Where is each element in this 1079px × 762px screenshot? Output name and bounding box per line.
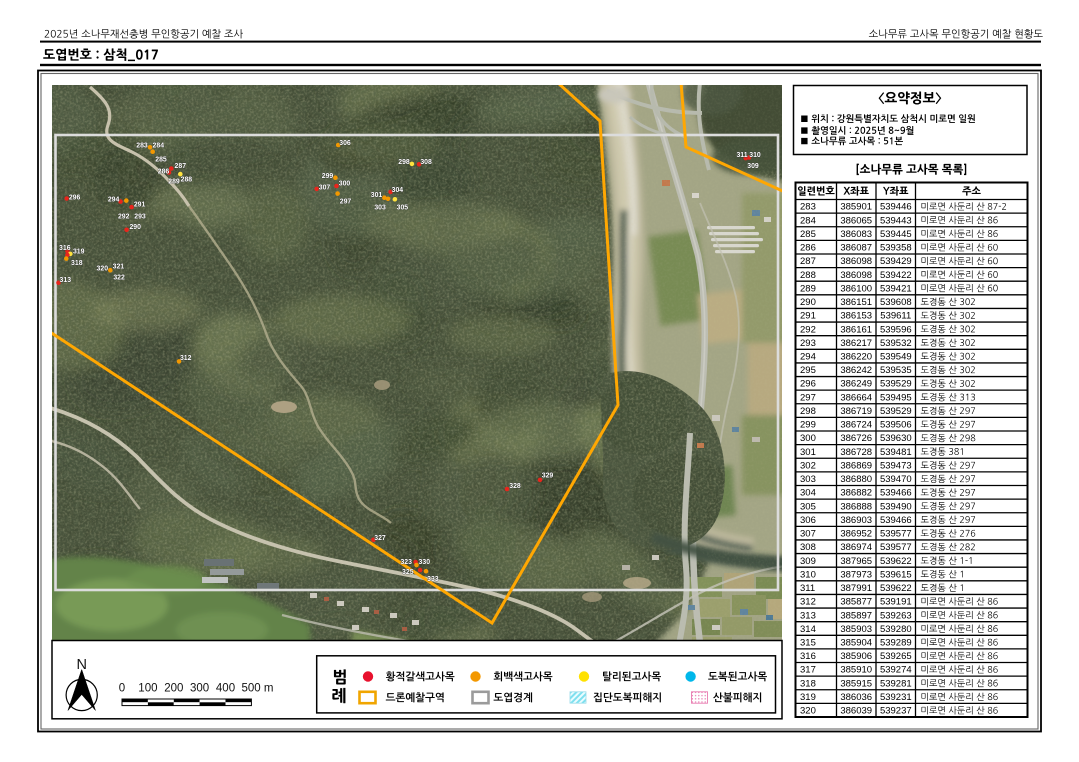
svg-text:316: 316	[59, 245, 71, 252]
svg-text:285: 285	[155, 156, 167, 163]
svg-text:318: 318	[800, 678, 816, 689]
svg-text:289: 289	[168, 179, 180, 186]
svg-text:385877: 385877	[840, 597, 872, 608]
svg-text:322: 322	[113, 275, 125, 282]
svg-text:296: 296	[69, 195, 81, 202]
svg-text:387965: 387965	[840, 556, 872, 567]
svg-text:386100: 386100	[840, 283, 872, 294]
svg-text:302: 302	[800, 461, 816, 472]
svg-text:287: 287	[175, 163, 187, 170]
svg-text:385897: 385897	[840, 610, 872, 621]
svg-text:400: 400	[216, 683, 235, 695]
svg-text:305: 305	[397, 204, 409, 211]
svg-text:315: 315	[800, 638, 816, 649]
svg-text:386098: 386098	[840, 270, 872, 281]
svg-text:385910: 385910	[840, 665, 872, 676]
svg-text:386869: 386869	[840, 461, 872, 472]
svg-text:539481: 539481	[880, 447, 912, 458]
svg-text:286: 286	[800, 243, 816, 254]
svg-text:539532: 539532	[880, 338, 912, 349]
svg-text:539506: 539506	[880, 420, 912, 431]
svg-text:539422: 539422	[880, 270, 912, 281]
svg-text:333: 333	[427, 576, 439, 583]
svg-text:286: 286	[158, 168, 170, 175]
svg-text:539529: 539529	[880, 379, 912, 390]
svg-text:294: 294	[800, 352, 816, 363]
svg-text:301: 301	[800, 447, 816, 458]
svg-text:287: 287	[800, 256, 816, 267]
svg-text:306: 306	[800, 515, 816, 526]
svg-text:386888: 386888	[840, 501, 872, 512]
svg-text:539535: 539535	[880, 365, 912, 376]
svg-text:312: 312	[180, 355, 192, 362]
svg-text:386726: 386726	[840, 433, 872, 444]
svg-text:386724: 386724	[840, 420, 872, 431]
svg-text:386036: 386036	[840, 692, 872, 703]
svg-text:320: 320	[97, 265, 109, 272]
svg-text:387973: 387973	[840, 569, 872, 580]
svg-text:303: 303	[800, 474, 816, 485]
svg-text:300: 300	[800, 433, 816, 444]
svg-text:293: 293	[800, 338, 816, 349]
svg-text:539596: 539596	[880, 324, 912, 335]
svg-text:294: 294	[108, 196, 120, 203]
svg-text:200: 200	[164, 683, 183, 695]
svg-text:386882: 386882	[840, 488, 872, 499]
svg-text:304: 304	[392, 187, 404, 194]
svg-text:386952: 386952	[840, 529, 872, 540]
svg-text:386065: 386065	[840, 215, 872, 226]
svg-text:539231: 539231	[880, 692, 912, 703]
svg-text:539191: 539191	[880, 597, 912, 608]
svg-text:386151: 386151	[840, 297, 872, 308]
svg-text:299: 299	[800, 420, 816, 431]
svg-text:291: 291	[800, 311, 816, 322]
svg-text:386039: 386039	[840, 706, 872, 717]
svg-text:385904: 385904	[840, 638, 872, 649]
svg-text:288: 288	[800, 270, 816, 281]
svg-text:539446: 539446	[880, 202, 912, 213]
svg-text:285: 285	[800, 229, 816, 240]
svg-text:385903: 385903	[840, 624, 872, 635]
svg-text:327: 327	[374, 535, 386, 542]
svg-text:295: 295	[800, 365, 816, 376]
svg-text:386249: 386249	[840, 379, 872, 390]
svg-text:309: 309	[800, 556, 816, 567]
svg-text:289: 289	[800, 283, 816, 294]
svg-text:292: 292	[118, 214, 130, 221]
svg-text:539630: 539630	[880, 433, 912, 444]
svg-text:312: 312	[800, 597, 816, 608]
svg-text:539490: 539490	[880, 501, 912, 512]
svg-text:313: 313	[60, 277, 72, 284]
svg-text:319: 319	[73, 249, 85, 256]
svg-text:0: 0	[119, 683, 125, 695]
svg-text:300: 300	[339, 181, 351, 188]
svg-text:298: 298	[800, 406, 816, 417]
svg-text:500 m: 500 m	[242, 683, 274, 695]
svg-text:320: 320	[800, 706, 816, 717]
svg-text:299: 299	[322, 173, 334, 180]
svg-text:329: 329	[542, 473, 554, 480]
svg-text:539289: 539289	[880, 638, 912, 649]
svg-text:539529: 539529	[880, 406, 912, 417]
svg-text:386664: 386664	[840, 392, 872, 403]
svg-text:300: 300	[190, 683, 209, 695]
svg-text:386153: 386153	[840, 311, 872, 322]
svg-text:539280: 539280	[880, 624, 912, 635]
svg-text:292: 292	[800, 324, 816, 335]
svg-text:386728: 386728	[840, 447, 872, 458]
svg-text:539495: 539495	[880, 392, 912, 403]
svg-text:385915: 385915	[840, 678, 872, 689]
svg-text:386217: 386217	[840, 338, 872, 349]
svg-text:539577: 539577	[880, 529, 912, 540]
svg-text:298: 298	[398, 159, 410, 166]
svg-text:539622: 539622	[880, 556, 912, 567]
svg-text:328: 328	[509, 483, 521, 490]
svg-text:386903: 386903	[840, 515, 872, 526]
svg-text:386161: 386161	[840, 324, 872, 335]
svg-text:539549: 539549	[880, 352, 912, 363]
svg-text:319: 319	[800, 692, 816, 703]
svg-text:539466: 539466	[880, 515, 912, 526]
svg-text:290: 290	[800, 297, 816, 308]
svg-text:386087: 386087	[840, 243, 872, 254]
svg-text:317: 317	[800, 665, 816, 676]
svg-text:385901: 385901	[840, 202, 872, 213]
svg-text:284: 284	[153, 142, 165, 149]
svg-text:539358: 539358	[880, 243, 912, 254]
svg-text:307: 307	[800, 529, 816, 540]
svg-text:303: 303	[374, 205, 386, 212]
svg-text:284: 284	[800, 215, 816, 226]
svg-text:539611: 539611	[880, 311, 911, 322]
svg-text:100: 100	[138, 683, 157, 695]
svg-text:386880: 386880	[840, 474, 872, 485]
svg-text:325: 325	[402, 569, 414, 576]
svg-text:288: 288	[181, 177, 193, 184]
svg-text:539274: 539274	[880, 665, 912, 676]
svg-text:323: 323	[400, 559, 412, 566]
svg-text:283: 283	[136, 142, 148, 149]
svg-text:293: 293	[134, 214, 146, 221]
svg-text:308: 308	[420, 159, 432, 166]
svg-text:386083: 386083	[840, 229, 872, 240]
svg-text:321: 321	[113, 264, 125, 271]
svg-text:301: 301	[371, 192, 383, 199]
svg-text:539265: 539265	[880, 651, 912, 662]
svg-text:310: 310	[800, 569, 816, 580]
svg-text:539445: 539445	[880, 229, 912, 240]
svg-text:539466: 539466	[880, 488, 912, 499]
svg-text:283: 283	[800, 202, 816, 213]
svg-text:539443: 539443	[880, 215, 912, 226]
svg-text:313: 313	[800, 610, 816, 621]
svg-text:296: 296	[800, 379, 816, 390]
svg-text:308: 308	[800, 542, 816, 553]
svg-text:310: 310	[749, 152, 761, 159]
svg-text:291: 291	[134, 201, 146, 208]
svg-text:386974: 386974	[840, 542, 872, 553]
svg-text:386220: 386220	[840, 352, 872, 363]
svg-text:539429: 539429	[880, 256, 912, 267]
svg-text:309: 309	[747, 163, 759, 170]
svg-text:386242: 386242	[840, 365, 872, 376]
svg-text:539473: 539473	[880, 461, 912, 472]
svg-text:314: 314	[800, 624, 816, 635]
svg-text:297: 297	[340, 198, 352, 205]
svg-text:539281: 539281	[880, 678, 912, 689]
svg-text:318: 318	[71, 260, 83, 267]
svg-text:306: 306	[339, 140, 351, 147]
svg-text:386098: 386098	[840, 256, 872, 267]
svg-text:307: 307	[319, 184, 331, 191]
svg-text:539421: 539421	[880, 283, 912, 294]
svg-text:539470: 539470	[880, 474, 912, 485]
svg-text:305: 305	[800, 501, 816, 512]
svg-text:539577: 539577	[880, 542, 912, 553]
svg-text:539622: 539622	[880, 583, 912, 594]
svg-text:330: 330	[419, 559, 431, 566]
svg-text:290: 290	[129, 224, 141, 231]
svg-text:297: 297	[800, 392, 816, 403]
svg-text:539608: 539608	[880, 297, 912, 308]
svg-text:539237: 539237	[880, 706, 912, 717]
svg-text:385906: 385906	[840, 651, 872, 662]
svg-text:304: 304	[800, 488, 816, 499]
svg-text:311: 311	[736, 152, 747, 159]
svg-text:386719: 386719	[840, 406, 872, 417]
svg-text:316: 316	[800, 651, 816, 662]
svg-text:539615: 539615	[880, 569, 912, 580]
svg-text:311: 311	[800, 583, 815, 594]
svg-text:539263: 539263	[880, 610, 912, 621]
svg-text:387991: 387991	[840, 583, 872, 594]
